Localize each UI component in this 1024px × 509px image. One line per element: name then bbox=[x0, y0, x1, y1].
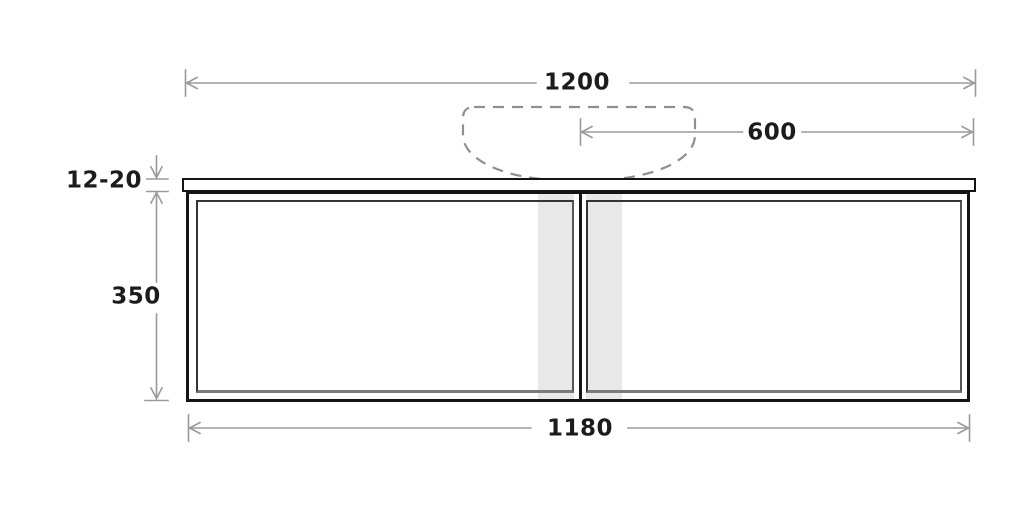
vanity-dimension-diagram: 1200 600 12-20 350 1180 bbox=[0, 0, 1024, 509]
dimension-label-cabinet-height: 350 bbox=[107, 286, 165, 309]
door-divider bbox=[579, 194, 582, 399]
basin-dashed-outline bbox=[463, 107, 695, 180]
cabinet-body bbox=[186, 191, 970, 402]
dimension-label-cabinet-width: 1180 bbox=[543, 418, 617, 441]
door-panel-right bbox=[586, 200, 962, 393]
dimension-label-countertop-thickness: 12-20 bbox=[62, 170, 146, 193]
dimension-label-countertop-width: 1200 bbox=[540, 72, 614, 95]
countertop bbox=[182, 178, 976, 192]
dimension-label-basin-offset: 600 bbox=[743, 122, 801, 145]
door-panel-left bbox=[196, 200, 574, 393]
